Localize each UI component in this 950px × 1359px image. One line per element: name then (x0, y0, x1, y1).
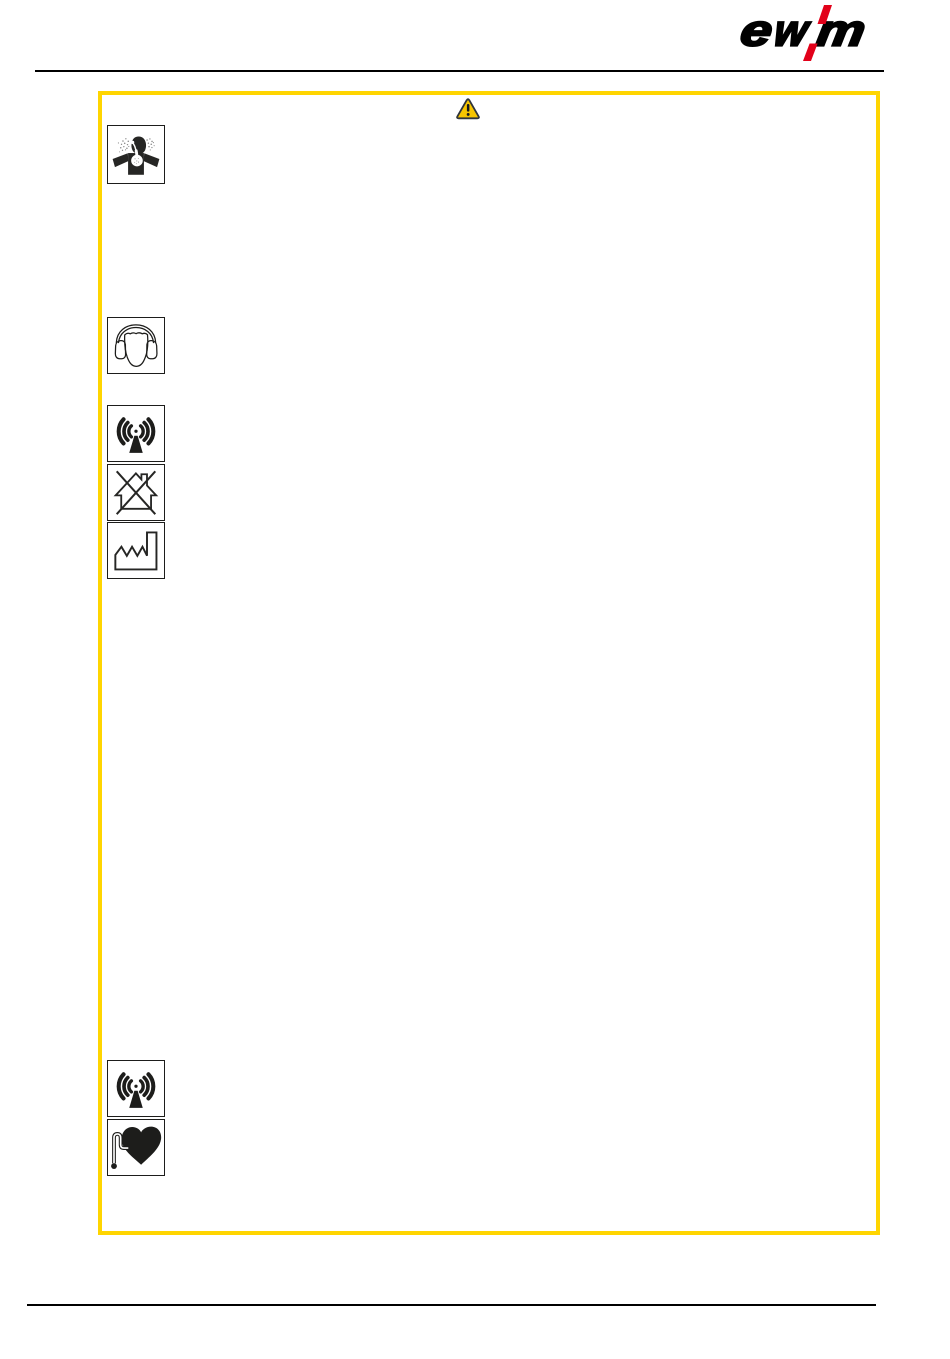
svg-text:w: w (771, 7, 814, 56)
svg-text:e: e (737, 5, 776, 55)
